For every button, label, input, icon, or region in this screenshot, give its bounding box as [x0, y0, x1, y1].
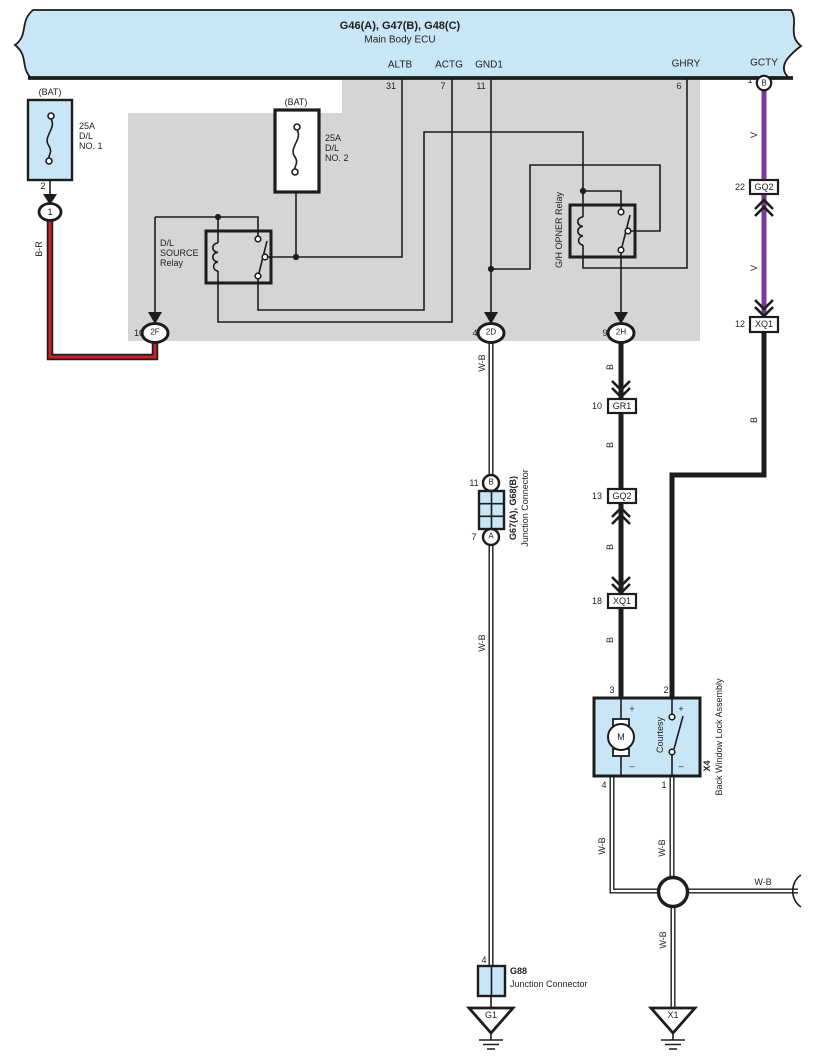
pin-number-ghry: 6: [676, 81, 681, 91]
junction-connector-g88: [478, 966, 505, 1008]
connector-gq2-mid-code: GQ2: [612, 491, 631, 501]
g67-terminal-top: B: [488, 479, 493, 488]
fuse1-pin: 2: [40, 181, 45, 191]
connector-2f-number: 10: [134, 328, 144, 338]
ecu-title: G46(A), G47(B), G48(C): [340, 20, 460, 32]
ground-x1-label: X1: [667, 1010, 678, 1020]
pin-label-actg: ACTG: [435, 59, 463, 70]
terminal-1-label: 1: [47, 207, 52, 217]
connector-xq1-right-code: XQ1: [755, 319, 773, 329]
wire-label-b-5: B: [749, 417, 759, 423]
x4-switch-plus: +: [678, 704, 683, 714]
x4-motor-minus: –: [629, 761, 634, 771]
pin-number-actg: 7: [440, 81, 445, 91]
g88-type: Junction Connector: [510, 979, 588, 989]
connector-gr1-code: GR1: [613, 401, 632, 411]
ecu-subtitle: Main Body ECU: [364, 34, 435, 45]
x4-pin-1: 1: [661, 780, 666, 790]
pin-number-gcty: 1: [747, 75, 752, 85]
connector-2h-number: 9: [602, 328, 607, 338]
fuse1-bat-label: (BAT): [39, 87, 62, 97]
x4-pin-2: 2: [663, 685, 668, 695]
wire-label-b-1: B: [605, 364, 615, 370]
pin-number-altb: 31: [386, 81, 396, 91]
x4-switch-minus: –: [678, 761, 683, 771]
fuse-dl-no2: [275, 110, 319, 192]
pin-label-gcty: GCTY: [750, 57, 778, 68]
connector-2d-code: 2D: [486, 329, 496, 338]
connector-gr1-number: 10: [592, 401, 602, 411]
wires-b: [621, 331, 764, 698]
connector-2h-code: 2H: [616, 329, 626, 338]
pin-label-ghry: GHRY: [672, 58, 701, 69]
connector-2f-code: 2F: [150, 329, 159, 338]
x4-assembly: [594, 698, 700, 776]
x4-pin-3: 3: [609, 685, 614, 695]
wires-w-b: [491, 342, 798, 1008]
g67-name: G67(A), G68(B): [508, 476, 518, 540]
x4-type: Back Window Lock Assembly: [714, 678, 724, 795]
x4-name: X4: [702, 760, 712, 771]
relay-gh-opner-label: G/H OPNER Relay: [554, 192, 564, 268]
x4-pin-4: 4: [601, 780, 606, 790]
connector-gq2-right-code: GQ2: [754, 182, 773, 192]
g67-terminal-bottom: A: [488, 533, 493, 542]
fuse-dl-no1: [28, 100, 72, 180]
wire-label-br: B-R: [34, 241, 44, 257]
diagram-graphics: [0, 0, 815, 1063]
connector-xq1-right-number: 12: [735, 319, 745, 329]
wire-label-v-1: V: [749, 132, 759, 138]
pin-label-gnd1: GND1: [475, 59, 503, 70]
wire-label-wb-3: W-B: [597, 837, 607, 854]
wire-label-wb-6: W-B: [658, 931, 668, 948]
pin-label-altb: ALTB: [388, 59, 412, 70]
fuse1-rating: 25A D/L NO. 1: [79, 121, 103, 151]
connector-xq1-mid-code: XQ1: [613, 596, 631, 606]
ground-g1-label: G1: [485, 1010, 497, 1020]
x4-motor-plus: +: [629, 704, 634, 714]
terminal-b-label: B: [761, 79, 766, 88]
fuse2-bat-label: (BAT): [285, 97, 308, 107]
wire-label-v-2: V: [749, 265, 759, 271]
x4-courtesy-label: Courtesy: [655, 717, 665, 753]
g67-pin-bottom: 7: [471, 532, 476, 542]
fuse2-rating: 25A D/L NO. 2: [325, 133, 349, 163]
wire-label-wb-2: W-B: [477, 634, 487, 651]
wiring-diagram: G46(A), G47(B), G48(C) Main Body ECU ALT…: [0, 0, 815, 1063]
wire-label-b-2: B: [605, 442, 615, 448]
wire-label-wb-1: W-B: [477, 354, 487, 371]
shield-region: [128, 78, 700, 341]
g67-type: Junction Connector: [520, 469, 530, 547]
wire-label-b-3: B: [605, 544, 615, 550]
connector-2d-number: 4: [472, 328, 477, 338]
x4-motor-label: M: [617, 732, 625, 742]
g67-pin-top: 11: [469, 478, 478, 488]
g88-name: G88: [510, 966, 527, 976]
connector-gq2-mid-number: 13: [592, 491, 602, 501]
wire-label-b-4: B: [605, 637, 615, 643]
connector-gq2-right-number: 22: [735, 182, 745, 192]
wire-label-wb-4: W-B: [657, 839, 667, 856]
connector-xq1-mid-number: 18: [592, 596, 602, 606]
wire-label-wb-5: W-B: [754, 877, 771, 887]
g88-pin: 4: [481, 955, 486, 965]
pin-number-gnd1: 11: [476, 81, 485, 91]
relay-dl-source-label: D/L SOURCE Relay: [160, 238, 199, 268]
